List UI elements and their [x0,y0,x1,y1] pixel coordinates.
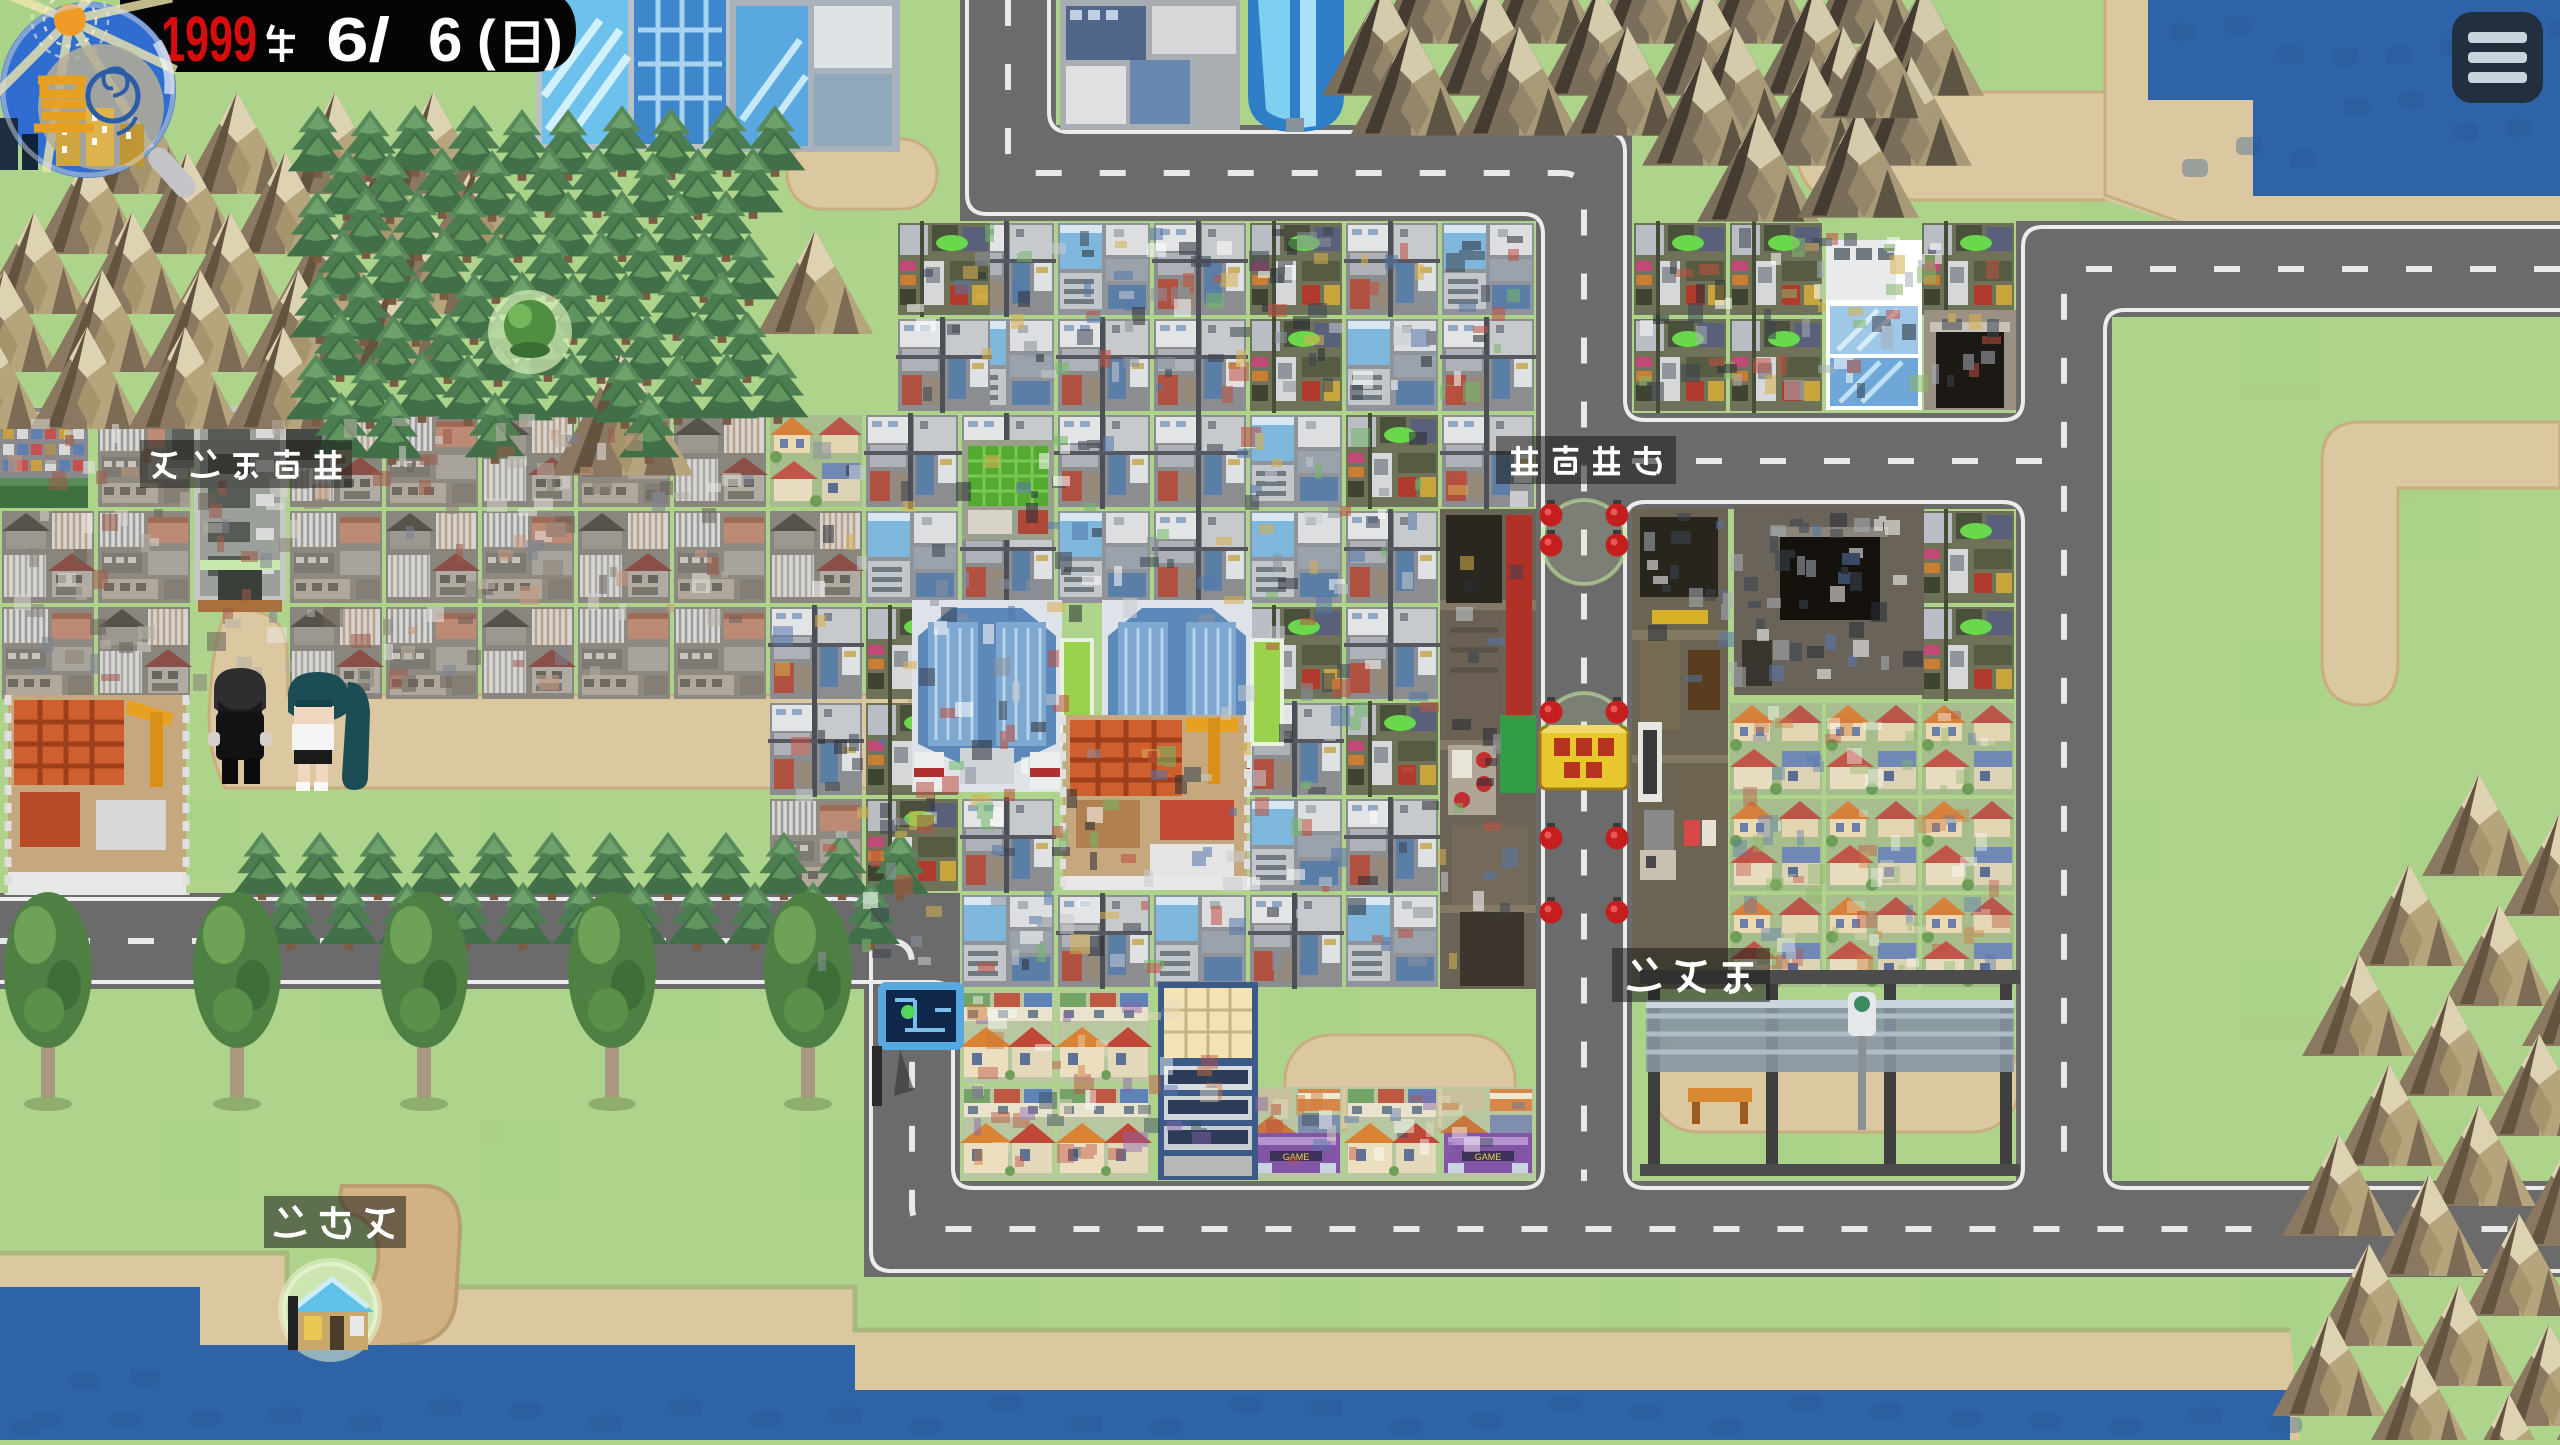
svg-text:6/: 6/ [326,6,390,75]
svg-text:): ) [544,8,563,71]
svg-text:(: ( [477,8,496,71]
svg-text:1999: 1999 [161,3,257,75]
svg-text:6: 6 [428,6,462,75]
